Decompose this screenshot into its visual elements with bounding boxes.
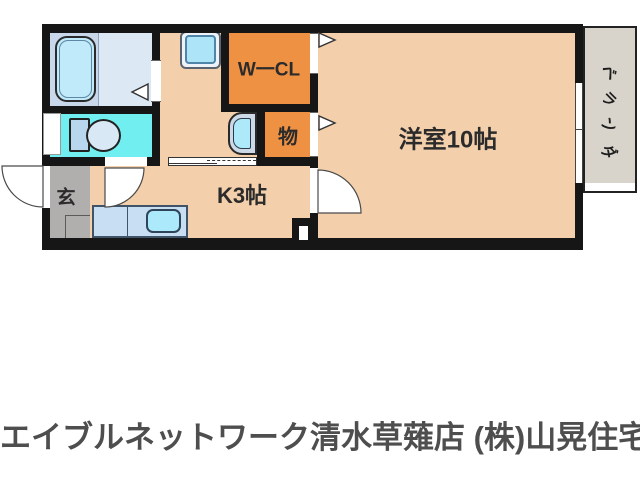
walk-in-closet-label: W一CL (238, 55, 300, 82)
bathroom-door-gap (151, 60, 161, 102)
kitchen-sink (146, 209, 181, 233)
western-room-label: 洋室10帖 (399, 120, 498, 155)
balcony-window-tick (575, 129, 583, 130)
pipe-space-hole (299, 226, 308, 240)
genkan-step-line-h (65, 215, 90, 216)
sliding-door-dashed-track (207, 160, 256, 161)
genkan-step-line-v (65, 215, 66, 238)
wcl-door-gap (310, 33, 318, 74)
sliding-door (168, 157, 257, 166)
floor-plan-canvas: 玄 K3帖 物 W一CL 洋室10帖 ベランダ エイブルネットワーク清水草薙店 … (0, 0, 640, 480)
toilet-window (43, 113, 61, 155)
mainroom-door-gap (310, 168, 318, 213)
wall-wcl-left (221, 24, 229, 112)
kitchen-counter-divider (127, 206, 128, 237)
storage-label: 物 (278, 121, 298, 150)
storage-door-gap (310, 112, 318, 157)
entrance-door-arc (2, 166, 43, 207)
toilet-door-gap (105, 157, 147, 166)
wall-storage-bottom (257, 157, 318, 166)
veranda-floor-bottom-margin (585, 183, 635, 191)
washing-machine (185, 35, 216, 64)
entrance-label: 玄 (56, 183, 75, 210)
balcony-window (575, 83, 583, 183)
sliding-door-solid-track (169, 163, 217, 164)
toilet-bowl (86, 119, 121, 152)
wall-wcl-bottom (221, 104, 318, 112)
agency-name-text: エイブルネットワーク清水草薙店 (株)山晃住宅 (0, 412, 640, 457)
entrance-door-gap (42, 166, 50, 208)
kitchen-label: K3帖 (217, 178, 267, 210)
bathtub-inner-rim (59, 40, 92, 98)
veranda-label: ベランダ (599, 62, 617, 164)
washbasin-bowl (233, 118, 251, 149)
bathtub (55, 36, 96, 102)
